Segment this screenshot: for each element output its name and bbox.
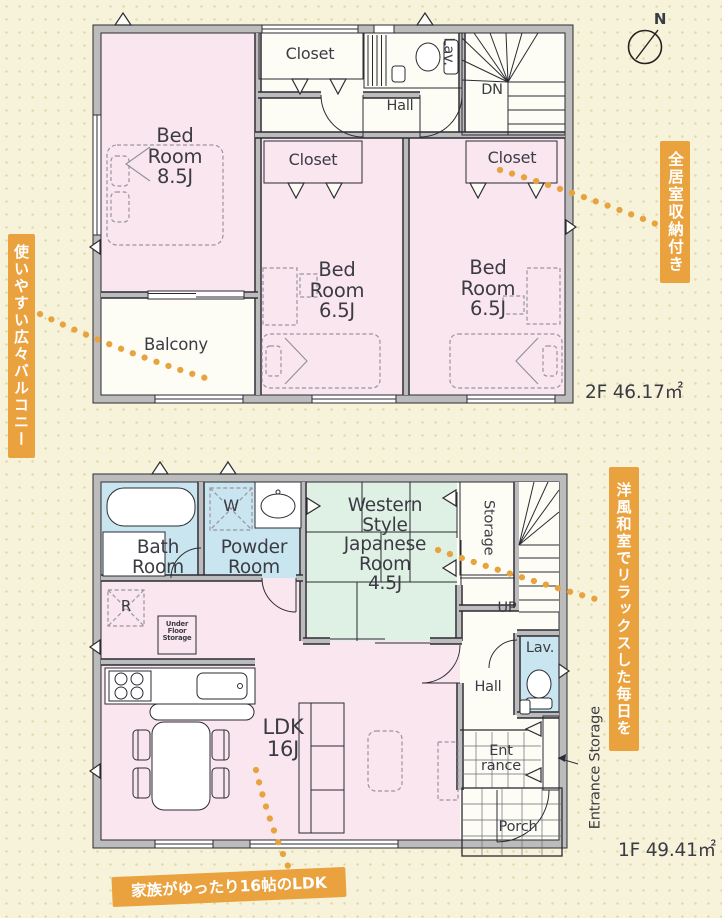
bath-label: Bath Room (113, 538, 203, 577)
label-line: Room (438, 279, 538, 300)
hall2f-label: Hall (375, 99, 425, 114)
bedroom2-label: Bed Room 6.5J (287, 260, 387, 322)
label-line: rance (470, 759, 532, 774)
storage1f-label: Storage (480, 493, 495, 563)
label-line: LDK (238, 716, 328, 738)
floorplan-drawing (0, 0, 722, 918)
powder-label: Powder Room (209, 538, 299, 577)
label-line: Powder (209, 538, 299, 558)
label-line: 6.5J (287, 301, 387, 322)
bedroom3-label: Bed Room 6.5J (438, 258, 538, 320)
hall1f-label: Hall (462, 680, 514, 695)
up-label: UP (487, 601, 527, 616)
porch-label: Porch (488, 820, 548, 835)
label-line: Room (330, 555, 440, 575)
label-line: Western (330, 496, 440, 516)
washer-label: W (217, 498, 245, 515)
label-line: 4.5J (330, 574, 440, 594)
label-line: 8.5J (125, 167, 225, 188)
bedroom1-label: Bed Room 8.5J (125, 126, 225, 188)
label-line: Style (330, 516, 440, 536)
compass-north-label: N (650, 12, 670, 28)
label-line: Room (287, 281, 387, 302)
label-line: Room (113, 558, 203, 578)
floor1-stairs (519, 482, 559, 612)
dn-label: DN (472, 83, 512, 98)
ldk-label: LDK 16J (238, 716, 328, 761)
compass-icon (629, 30, 662, 64)
storage-note-band: 全居室収納付き (660, 141, 690, 283)
lav1f-label: Lav. (519, 641, 561, 656)
label-line: Ent (470, 744, 532, 759)
floor2-area-label: 2F 46.17㎡ (585, 383, 705, 403)
label-line: Bed (287, 260, 387, 281)
fridge-label: R (112, 599, 140, 615)
label-line: Storage (158, 635, 196, 642)
floorplan-page: N Bed Room 8.5J Closet Lav. DN Hall Clos… (0, 0, 722, 918)
label-line: Bed (125, 126, 225, 147)
entrance-label: Ent rance (470, 744, 532, 775)
lav2f-label: Lav. (440, 29, 455, 75)
label-line: Room (209, 558, 299, 578)
label-line: 6.5J (438, 299, 538, 320)
under-floor-storage-label: Under Floor Storage (158, 621, 196, 643)
closet3-label: Closet (472, 150, 552, 167)
balcony-label: Balcony (131, 336, 221, 353)
label-line: Room (125, 147, 225, 168)
japanese-room-label: Western Style Japanese Room 4.5J (330, 496, 440, 594)
label-line: 16J (238, 738, 328, 760)
label-line: Bed (438, 258, 538, 279)
label-line: Japanese (330, 535, 440, 555)
closet1-label: Closet (270, 46, 350, 63)
closet2-label: Closet (273, 152, 353, 169)
label-line: Bath (113, 538, 203, 558)
balcony-note-band: 使いやすい広々バルコニー (8, 234, 35, 458)
japanese-note-band: 洋風和室でリラックスした毎日を (609, 467, 639, 751)
floor1-area-label: 1F 49.41㎡ (618, 841, 722, 861)
north-letter: N (654, 10, 666, 28)
entrance-storage-label: Entrance Storage (588, 693, 603, 843)
sink-icon (255, 482, 301, 528)
